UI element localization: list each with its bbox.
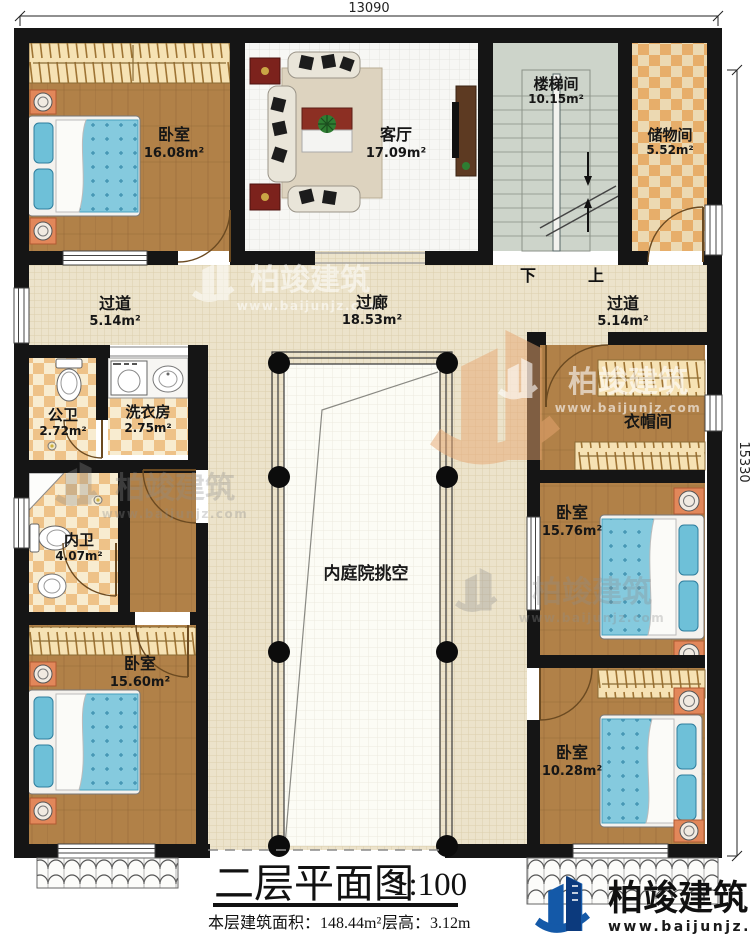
label-private-bath: 内卫 bbox=[64, 531, 94, 549]
svg-text:5.14m²: 5.14m² bbox=[89, 314, 140, 329]
label-living-room: 客厅 bbox=[380, 125, 412, 144]
svg-text:5.52m²: 5.52m² bbox=[646, 143, 693, 157]
svg-text:2.75m²: 2.75m² bbox=[124, 421, 171, 435]
window bbox=[63, 251, 147, 265]
svg-text:17.09m²: 17.09m² bbox=[366, 146, 426, 161]
label-bedroom-bottom-left: 卧室 bbox=[124, 654, 156, 673]
svg-text:10.15m²: 10.15m² bbox=[528, 92, 584, 106]
plan-title: 二层平面图 bbox=[214, 861, 414, 906]
plan-scale: 1:100 bbox=[392, 867, 467, 903]
dimension-right-value: 15330 bbox=[736, 441, 750, 482]
brand-website: www.baijunjz.com bbox=[608, 919, 750, 935]
label-bedroom-right-lower: 卧室 bbox=[556, 743, 588, 762]
svg-text:4.07m²: 4.07m² bbox=[55, 549, 102, 563]
bed-right-upper bbox=[600, 515, 704, 639]
bed-bottom-left bbox=[28, 690, 140, 794]
svg-text:2.72m²: 2.72m² bbox=[39, 424, 86, 438]
label-bedroom-right-upper: 卧室 bbox=[556, 503, 588, 522]
svg-text:18.53m²: 18.53m² bbox=[342, 313, 402, 328]
label-public-bath: 公卫 bbox=[48, 406, 78, 424]
floor-plan-drawing: 柏竣建筑 www.baijunjz.com 柏竣建筑 www.baijunjz.… bbox=[0, 0, 750, 943]
window bbox=[705, 395, 722, 431]
window bbox=[573, 844, 668, 858]
brand-name: 柏竣建筑 bbox=[608, 878, 748, 919]
bed-top-left bbox=[28, 116, 140, 216]
svg-text:10.28m²: 10.28m² bbox=[542, 764, 602, 779]
svg-text:15.76m²: 15.76m² bbox=[542, 524, 602, 539]
svg-text:5.14m²: 5.14m² bbox=[597, 314, 648, 329]
bed-right-lower bbox=[600, 715, 702, 827]
closet-bottom-left bbox=[29, 627, 196, 655]
label-cloakroom: 衣帽间 bbox=[624, 412, 672, 431]
floor-plan-page: 柏竣建筑 www.baijunjz.com 柏竣建筑 www.baijunjz.… bbox=[0, 0, 750, 943]
door-bedroom-right-upper bbox=[527, 517, 540, 610]
floor-vestibule bbox=[130, 468, 196, 612]
label-storage: 储物间 bbox=[647, 126, 692, 144]
closet-top-left bbox=[29, 43, 230, 83]
label-gallery: 过廊 bbox=[356, 293, 388, 312]
title-block: 二层平面图 1:100 本层建筑面积：148.44m² 层高：3.12m bbox=[208, 861, 471, 932]
window bbox=[14, 498, 29, 548]
tv bbox=[452, 102, 459, 158]
svg-text:15.60m²: 15.60m² bbox=[110, 675, 170, 690]
window bbox=[58, 844, 155, 858]
plan-height-note: 层高：3.12m bbox=[382, 914, 471, 932]
window bbox=[14, 288, 29, 343]
label-courtyard: 内庭院挑空 bbox=[324, 563, 409, 584]
label-corridor-left: 过道 bbox=[99, 294, 131, 313]
window bbox=[705, 205, 722, 255]
brand-logo: 柏竣建筑 www.baijunjz.com bbox=[535, 876, 750, 935]
label-laundry: 洗衣房 bbox=[125, 403, 170, 421]
title-underline bbox=[213, 903, 458, 907]
label-corridor-right: 过道 bbox=[607, 294, 639, 313]
svg-text:16.08m²: 16.08m² bbox=[144, 146, 204, 161]
plan-area-note: 本层建筑面积：148.44m² bbox=[208, 914, 381, 932]
label-stairwell: 楼梯间 bbox=[533, 75, 578, 93]
stair-up-label: 上 bbox=[588, 266, 604, 285]
roof-tiles-left bbox=[37, 858, 178, 888]
floor-courtyard-void bbox=[284, 364, 440, 846]
label-bedroom-top-left: 卧室 bbox=[158, 125, 190, 144]
stair-down-label: 下 bbox=[520, 266, 536, 285]
dimension-top-value: 13090 bbox=[348, 1, 389, 16]
laundry-fixtures bbox=[108, 358, 188, 398]
